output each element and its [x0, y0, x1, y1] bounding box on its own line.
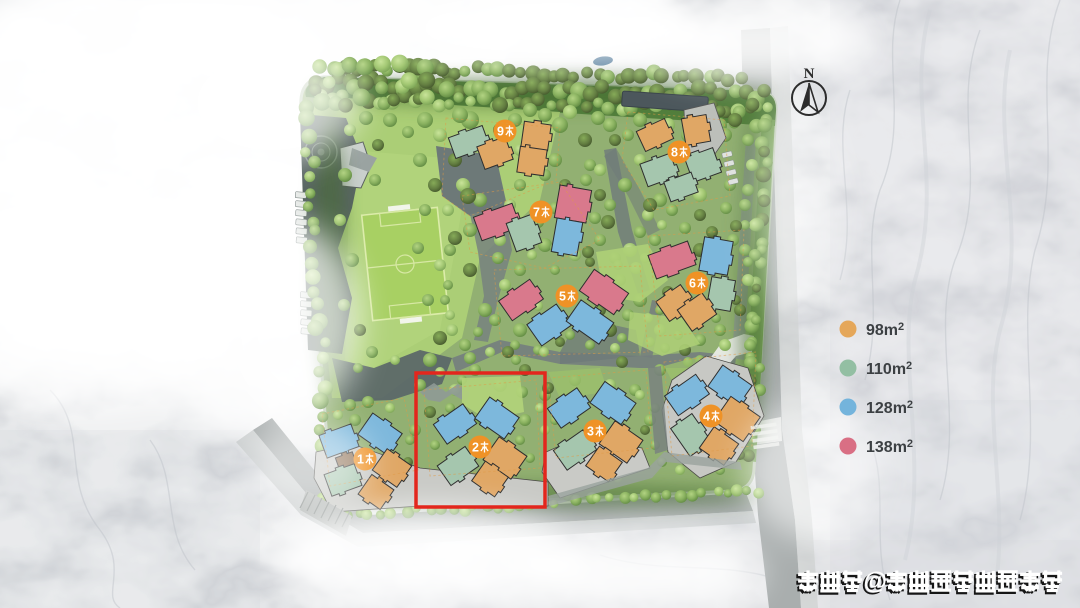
svg-text:110m2: 110m2 — [866, 360, 912, 378]
svg-text:128m2: 128m2 — [866, 399, 913, 417]
svg-text:2: 2 — [472, 441, 479, 455]
svg-text:@: @ — [864, 568, 887, 595]
svg-text:138m2: 138m2 — [866, 438, 913, 456]
svg-text:7: 7 — [533, 206, 540, 220]
svg-text:8: 8 — [671, 146, 678, 160]
svg-text:3: 3 — [587, 425, 594, 439]
svg-text:9: 9 — [497, 125, 504, 139]
svg-text:4: 4 — [703, 410, 710, 424]
svg-text:5: 5 — [559, 290, 566, 304]
svg-text:6: 6 — [689, 277, 696, 291]
svg-text:N: N — [804, 66, 815, 82]
